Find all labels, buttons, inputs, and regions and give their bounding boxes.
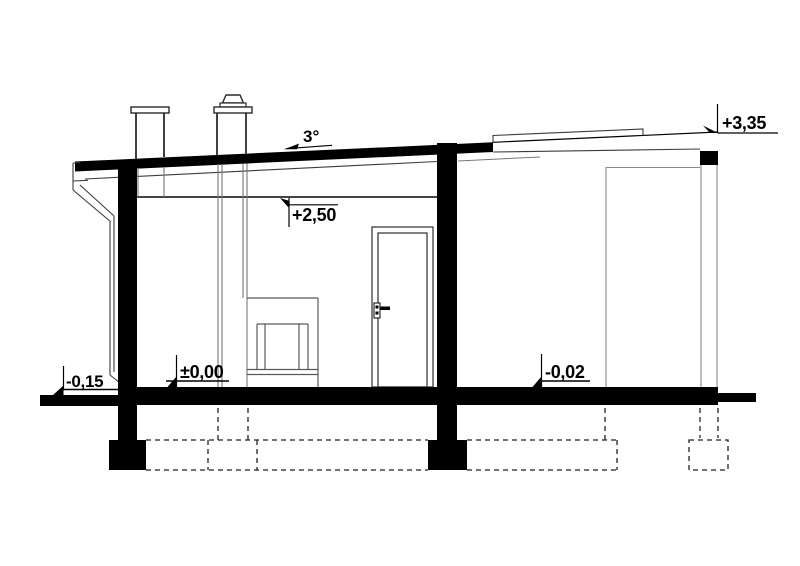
vent-cowl-icon xyxy=(223,95,244,103)
level-marker-floor: ±0,00 xyxy=(166,355,229,387)
gutter-top-tick xyxy=(73,163,80,164)
chimney-vent xyxy=(214,95,252,155)
level-arrow-icon xyxy=(168,377,177,388)
soffit-outer-line xyxy=(73,190,111,222)
roof-level-label: +3,35 xyxy=(722,113,766,133)
interior-door xyxy=(372,227,433,387)
level-arrow-icon xyxy=(703,126,718,134)
cross-section-drawing: 3° xyxy=(0,0,800,566)
handle-keyhole-top xyxy=(376,306,379,309)
left-wall-below-slab xyxy=(118,405,137,440)
ceiling-level-label: +2,50 xyxy=(292,205,336,225)
level-arrow-icon xyxy=(533,377,542,388)
right-wallplate-cut xyxy=(700,151,718,165)
roof-far-strip xyxy=(493,129,643,142)
floor-slab xyxy=(118,387,718,405)
level-marker-ceiling: +2,50 xyxy=(280,198,338,227)
level-arrow-icon xyxy=(280,198,290,209)
level-marker-ground: -0,15 xyxy=(53,366,118,395)
fascia-line xyxy=(73,180,88,181)
slope-arrowhead-icon xyxy=(284,144,299,150)
roof-slope-label: 3° xyxy=(303,127,319,146)
section-canvas: 3° xyxy=(0,0,800,566)
roof-slope-annotation: 3° xyxy=(284,127,332,149)
handle-lever-icon xyxy=(380,307,390,311)
fireplace xyxy=(247,298,318,387)
ground-level-label: -0,15 xyxy=(66,372,103,391)
roof-edge-bottom xyxy=(493,149,700,152)
level-marker-roof: +3,35 xyxy=(703,104,778,133)
vent-cap xyxy=(214,107,252,113)
foundation-center xyxy=(428,440,467,470)
middle-wall-below-slab xyxy=(437,405,457,440)
roof-soffit-far xyxy=(458,157,540,161)
level-arrow-icon xyxy=(53,386,64,396)
right-wall-elevation xyxy=(606,165,717,393)
chimney-cap xyxy=(131,107,169,113)
door-handle xyxy=(374,303,390,318)
floor-level-label: ±0,00 xyxy=(180,362,224,382)
right-floor-level-label: -0,02 xyxy=(545,362,585,382)
right-footing-dashed xyxy=(689,440,728,470)
handle-keyhole-bottom xyxy=(376,312,379,315)
roof-slab-cut xyxy=(75,142,493,171)
ground-left xyxy=(40,395,122,406)
paving-right xyxy=(718,393,756,402)
level-marker-right-floor: -0,02 xyxy=(533,354,591,387)
handle-plate xyxy=(374,303,380,318)
foundation-left xyxy=(109,440,146,470)
roof xyxy=(75,129,718,179)
